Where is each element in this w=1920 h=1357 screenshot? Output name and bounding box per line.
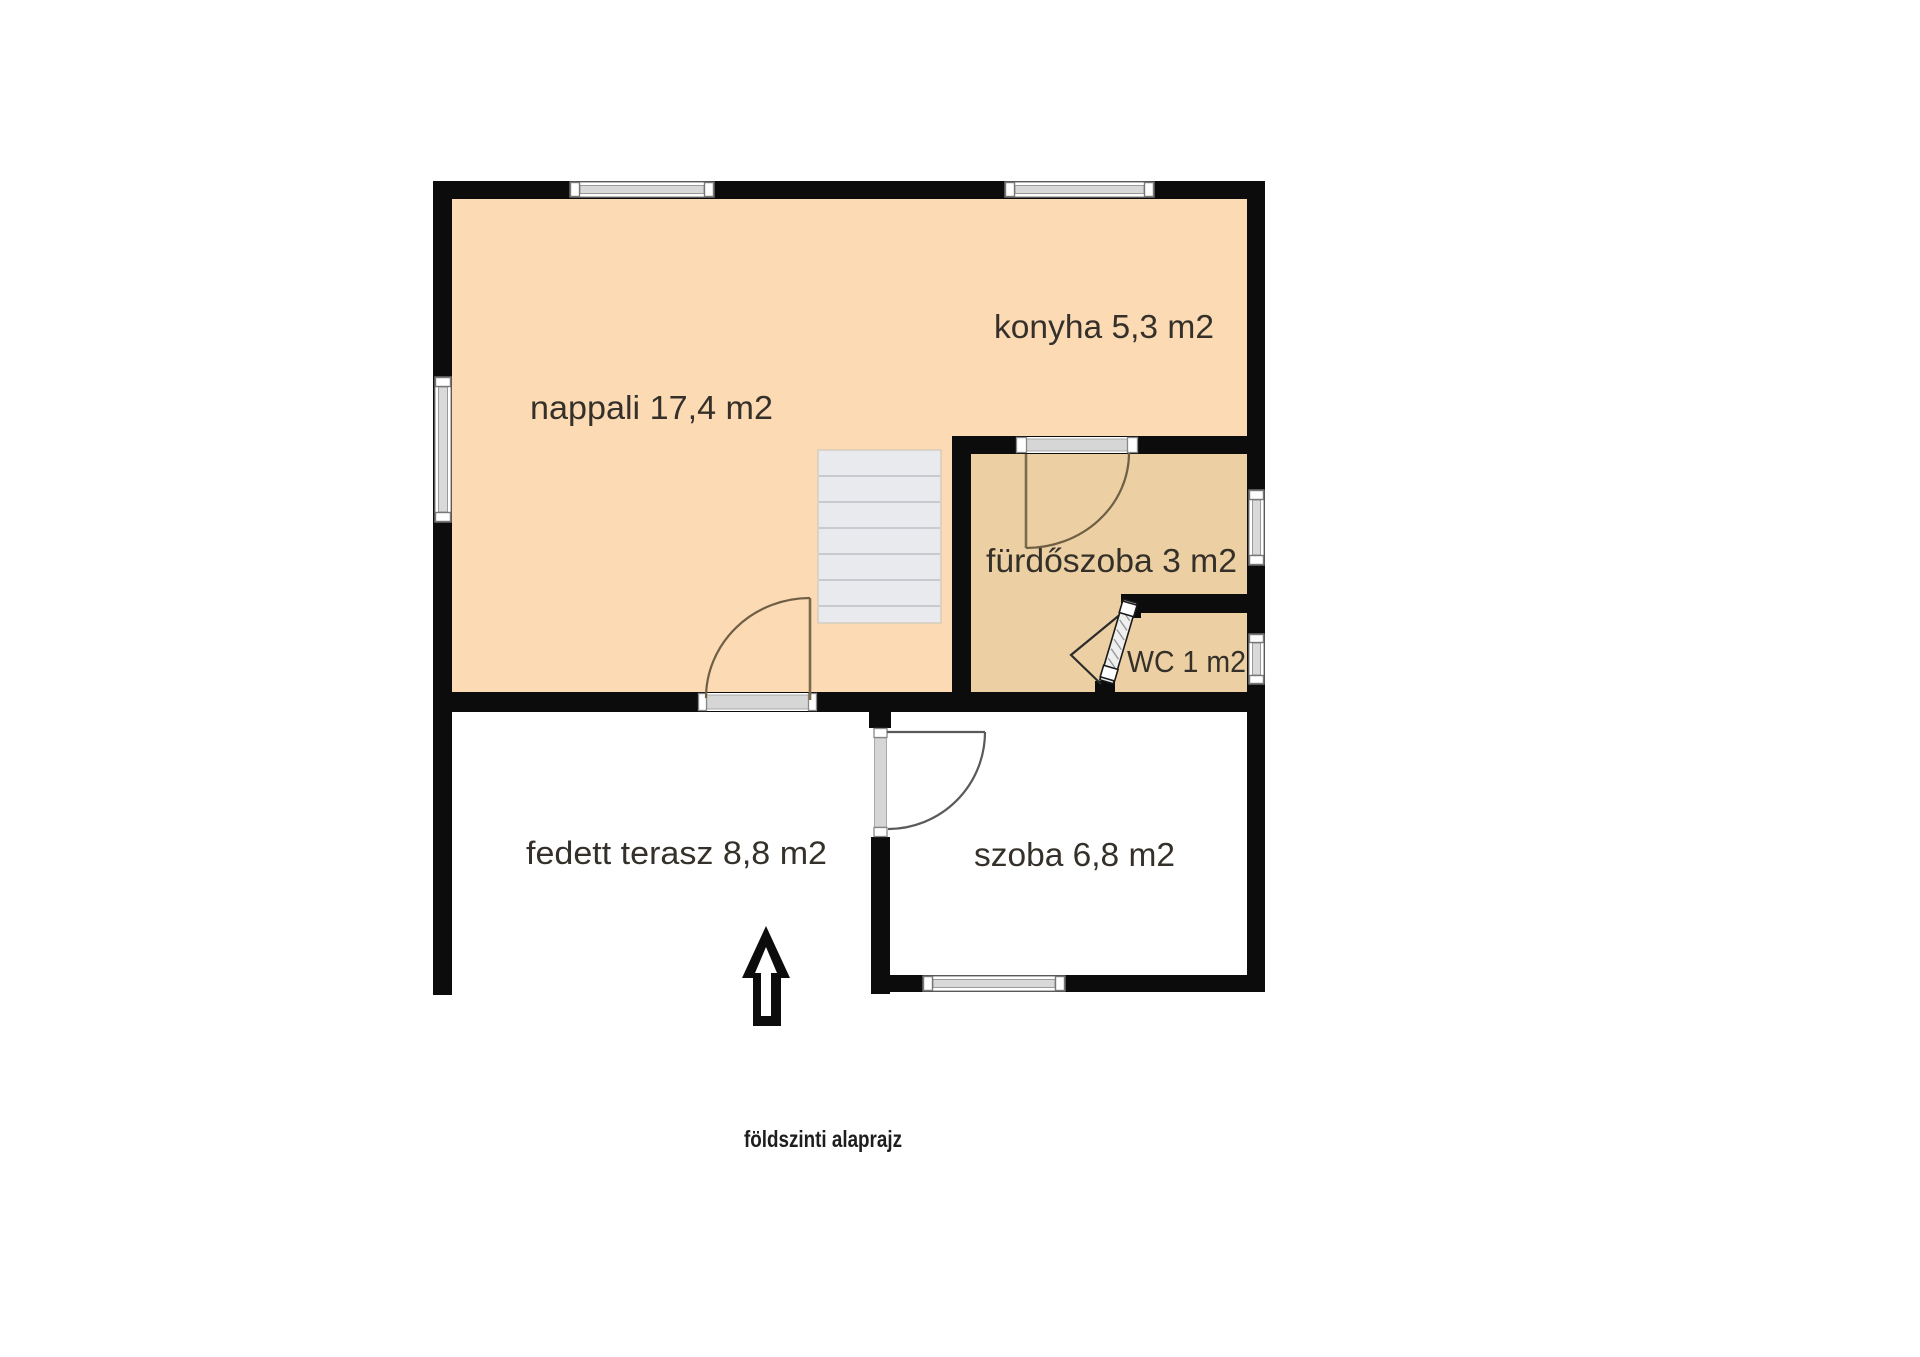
svg-text:fedett terasz 8,8 m2: fedett terasz 8,8 m2 [526, 835, 827, 871]
svg-text:konyha 5,3 m2: konyha 5,3 m2 [994, 308, 1214, 345]
svg-text:földszinti alaprajz: földszinti alaprajz [744, 1126, 902, 1152]
svg-text:szoba 6,8 m2: szoba 6,8 m2 [974, 836, 1175, 873]
svg-text:fürdőszoba 3 m2: fürdőszoba 3 m2 [986, 542, 1237, 579]
svg-text:WC 1 m2: WC 1 m2 [1127, 644, 1246, 679]
svg-text:nappali 17,4 m2: nappali 17,4 m2 [530, 389, 773, 426]
